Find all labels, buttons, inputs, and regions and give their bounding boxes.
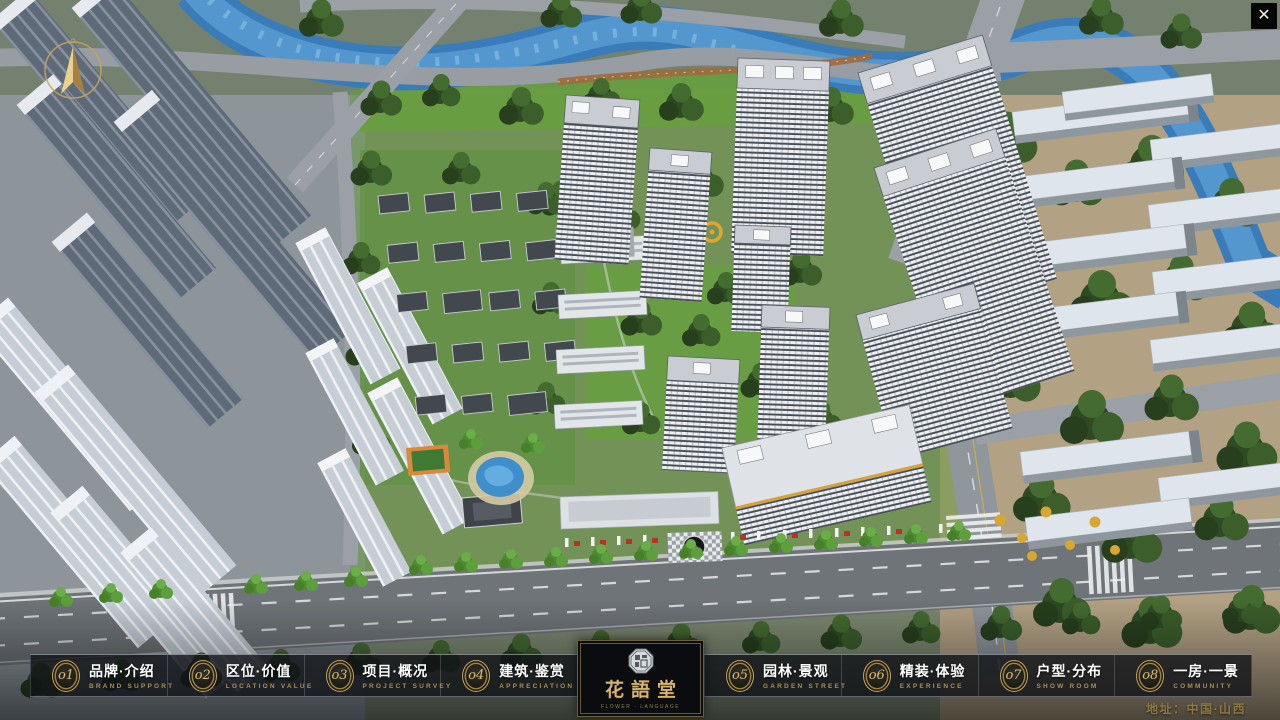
nav-label: 一房·一景 bbox=[1173, 661, 1239, 681]
project-logo-plaque[interactable]: 花語堂 FLOWER · LANGUAGE bbox=[577, 640, 704, 717]
nav-label: 户型·分布 bbox=[1037, 661, 1103, 681]
compass-icon bbox=[38, 34, 108, 104]
nav-badge-7: o7 bbox=[1000, 660, 1028, 692]
app-window: ✕ o1 品牌·介绍 BRAND SUPPORT o2 区位·价值 LOCATI… bbox=[0, 0, 1280, 720]
address-text: 地址：中国·山西 bbox=[1146, 700, 1246, 717]
project-logo-caption: FLOWER · LANGUAGE bbox=[601, 704, 680, 710]
site-aerial-render[interactable] bbox=[0, 0, 1280, 720]
nav-badge-1: o1 bbox=[52, 660, 80, 692]
nav-badge-3: o3 bbox=[326, 660, 354, 692]
nav-item-location-value[interactable]: o2 区位·价值 LOCATION VALUE bbox=[168, 655, 305, 696]
nav-badge-8: o8 bbox=[1136, 660, 1164, 692]
nav-badge-6: o6 bbox=[863, 660, 891, 692]
nav-label: 项目·概况 bbox=[363, 661, 441, 681]
seal-icon bbox=[628, 648, 654, 674]
project-logo-title: 花語堂 bbox=[598, 675, 683, 702]
nav-sublabel: APPRECIATION bbox=[499, 683, 574, 690]
nav-badge-5: o5 bbox=[726, 660, 754, 692]
nav-item-decor-experience[interactable]: o6 精装·体验 EXPERIENCE bbox=[842, 655, 979, 696]
nav-sublabel: COMMUNITY bbox=[1173, 683, 1239, 690]
close-button[interactable]: ✕ bbox=[1251, 3, 1277, 29]
nav-sublabel: GARDEN STREET bbox=[763, 683, 841, 690]
nav-item-room-view[interactable]: o8 一房·一景 COMMUNITY bbox=[1115, 655, 1252, 696]
nav-sublabel: PROJECT SURVEY bbox=[363, 683, 441, 690]
nav-badge-4: o4 bbox=[462, 660, 490, 692]
nav-item-architecture-appreciation[interactable]: o4 建筑·鉴赏 APPRECIATION bbox=[441, 655, 578, 696]
nav-label: 区位·价值 bbox=[226, 661, 304, 681]
nav-label: 精装·体验 bbox=[900, 661, 966, 681]
nav-item-project-overview[interactable]: o3 项目·概况 PROJECT SURVEY bbox=[305, 655, 442, 696]
nav-label: 品牌·介绍 bbox=[89, 661, 167, 681]
nav-sublabel: EXPERIENCE bbox=[900, 683, 966, 690]
nav-label: 园林·景观 bbox=[763, 661, 841, 681]
nav-label: 建筑·鉴赏 bbox=[499, 661, 574, 681]
nav-item-brand-intro[interactable]: o1 品牌·介绍 BRAND SUPPORT bbox=[30, 655, 168, 696]
nav-item-garden-landscape[interactable]: o5 园林·景观 GARDEN STREET bbox=[705, 655, 842, 696]
nav-item-floorplan-distribution[interactable]: o7 户型·分布 SHOW ROOM bbox=[979, 655, 1116, 696]
nav-sublabel: SHOW ROOM bbox=[1037, 683, 1103, 690]
nav-sublabel: BRAND SUPPORT bbox=[89, 683, 167, 690]
nav-badge-2: o2 bbox=[189, 660, 217, 692]
nav-sublabel: LOCATION VALUE bbox=[226, 683, 304, 690]
